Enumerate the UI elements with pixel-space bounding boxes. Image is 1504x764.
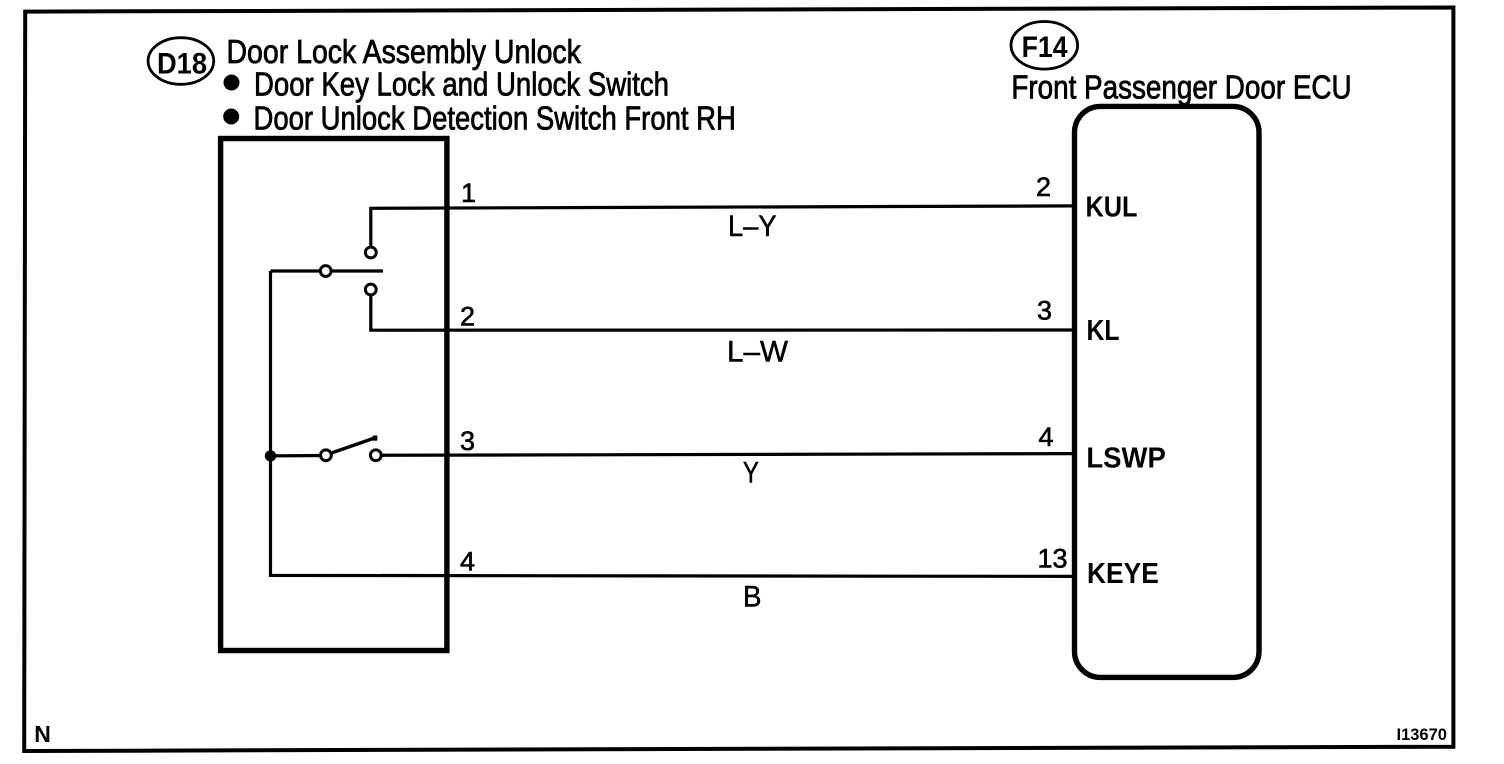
svg-text:4: 4 xyxy=(460,547,475,577)
svg-text:1: 1 xyxy=(461,178,476,208)
svg-text:B: B xyxy=(743,580,762,613)
svg-text:Front Passenger Door ECU: Front Passenger Door ECU xyxy=(1011,69,1351,106)
svg-text:L–W: L–W xyxy=(727,336,789,369)
svg-text:KUL: KUL xyxy=(1086,192,1138,224)
svg-text:4: 4 xyxy=(1038,422,1053,452)
svg-text:13: 13 xyxy=(1037,544,1067,574)
svg-text:3: 3 xyxy=(1037,296,1052,326)
svg-text:LSWP: LSWP xyxy=(1086,443,1165,475)
svg-text:KEYE: KEYE xyxy=(1087,558,1159,590)
svg-text:Door Lock Assembly Unlock: Door Lock Assembly Unlock xyxy=(227,33,582,70)
svg-text:D18: D18 xyxy=(157,48,207,81)
svg-text:KL: KL xyxy=(1087,315,1120,347)
svg-text:Y: Y xyxy=(743,456,759,489)
svg-text:3: 3 xyxy=(460,426,475,456)
svg-text:I13670: I13670 xyxy=(1397,725,1447,744)
svg-text:N: N xyxy=(34,721,51,747)
svg-text:L–Y: L–Y xyxy=(728,210,777,243)
svg-text:2: 2 xyxy=(1036,172,1051,202)
svg-text:Door Unlock Detection Switch F: Door Unlock Detection Switch Front RH xyxy=(254,100,736,137)
svg-text:2: 2 xyxy=(460,302,475,332)
svg-text:F14: F14 xyxy=(1022,31,1068,64)
svg-text:Door Key Lock and Unlock Switc: Door Key Lock and Unlock Switch xyxy=(254,66,669,103)
